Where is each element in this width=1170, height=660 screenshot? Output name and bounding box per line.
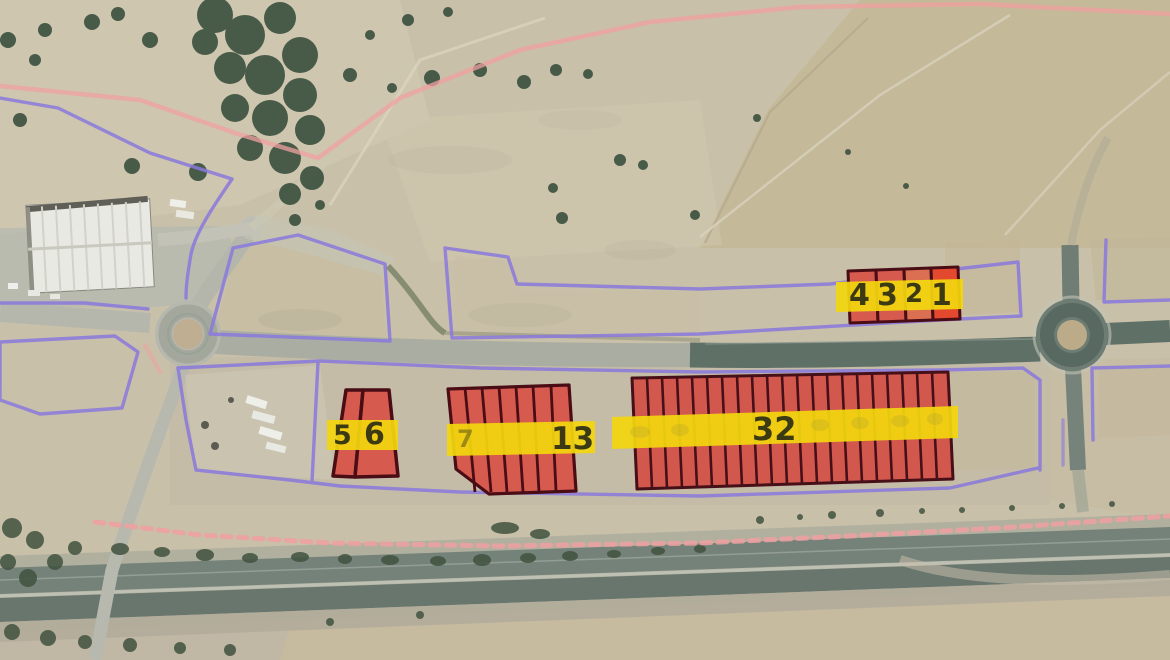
plot-label-2: 2 (905, 279, 923, 309)
plot-label-7: 7 (457, 425, 474, 453)
aerial-map: 4 3 2 1 5 6 7 13 (0, 0, 1170, 660)
warehouse-building (26, 199, 154, 293)
plot-label-13: 13 (551, 421, 594, 457)
plot-label-6: 6 (364, 417, 385, 452)
roundabout-east (1034, 297, 1110, 373)
plot-label-4: 4 (849, 278, 870, 313)
plot-label-3: 3 (877, 278, 898, 313)
parcel-block-plots-1-4[interactable]: 4 3 2 1 (836, 267, 963, 323)
plot-label-5: 5 (333, 420, 352, 451)
plot-label-32: 32 (752, 410, 797, 448)
aerial-map-screenshot: 4 3 2 1 5 6 7 13 (0, 0, 1170, 660)
plot-label-1: 1 (931, 278, 952, 313)
parcel-block-plots-14-32[interactable]: 32 (612, 372, 958, 489)
